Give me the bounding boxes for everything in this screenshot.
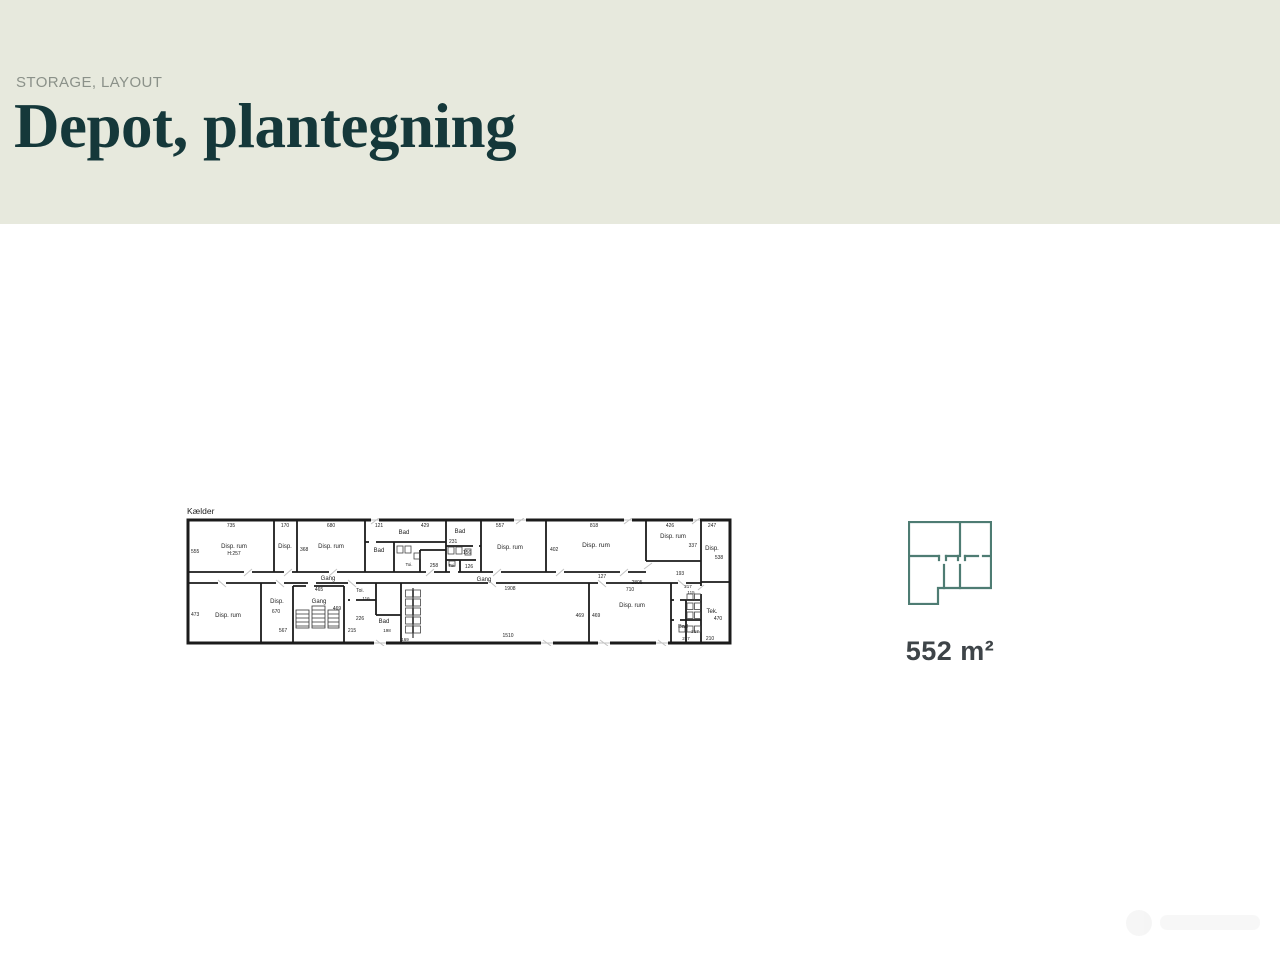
plan-label: 198: [383, 628, 391, 633]
plan-label: 426: [666, 523, 675, 529]
plan-label: Disp.: [270, 599, 284, 605]
plan-label: Toi.: [405, 562, 412, 567]
page-header: STORAGE, LAYOUT Depot, plantegning: [0, 0, 1280, 224]
plan-label: 115: [687, 590, 695, 595]
plan-label: 469: [592, 613, 601, 619]
plan-label: Bad: [374, 548, 385, 554]
plan-label: 116: [362, 596, 370, 601]
floorplan: Kælder: [186, 506, 732, 651]
plan-label: 217: [684, 584, 692, 589]
plan-label: 735: [227, 523, 236, 529]
watermark: [1126, 908, 1266, 938]
plan-label: Gang: [477, 577, 492, 583]
plan-label: Bad: [379, 619, 390, 625]
plan-label: 469: [333, 606, 342, 612]
plan-label: 473: [191, 612, 200, 618]
plan-label: 429: [421, 523, 430, 529]
plan-label: 210: [706, 636, 715, 642]
plan-label: 127: [598, 574, 607, 580]
plan-label: Disp. rum: [318, 544, 344, 550]
plan-label: 469: [576, 613, 585, 619]
plan-label: 170: [281, 523, 290, 529]
page-root: STORAGE, LAYOUT Depot, plantegning Kælde…: [0, 0, 1280, 960]
plan-label: 680: [327, 523, 336, 529]
plan-label: 818: [590, 523, 599, 529]
plan-label: 1510: [502, 633, 513, 639]
plan-label: 217: [682, 636, 690, 641]
plan-label: 2805: [631, 580, 642, 586]
plan-label: Disp.: [705, 546, 719, 552]
plan-label: Bad: [455, 529, 466, 535]
floorplan-drawing: 735555Disp. rumH:257170Disp.368680Disp. …: [186, 518, 732, 646]
plan-label: Disp. rum: [215, 613, 241, 619]
plan-label: 670: [272, 609, 281, 615]
plan-label: Toi.: [448, 563, 455, 568]
watermark-text-shape: [1160, 915, 1260, 930]
area-summary: 552 m²: [880, 521, 1020, 667]
plan-label: Toi.: [356, 588, 364, 594]
plan-label: 402: [550, 547, 559, 553]
plan-label: 217: [691, 629, 699, 634]
plan-label: 258: [430, 563, 439, 569]
plan-label: 156: [463, 550, 472, 556]
plan-label: Gang: [321, 576, 336, 582]
floorplan-name: Kælder: [187, 506, 732, 516]
plan-label: Disp. rum: [221, 544, 247, 550]
watermark-logo-icon: [1126, 910, 1152, 936]
plan-label: 368: [300, 547, 309, 553]
header-eyebrow: STORAGE, LAYOUT: [16, 74, 162, 91]
plan-label: Gang: [312, 599, 327, 605]
plan-label: 247: [708, 523, 717, 529]
plan-label: Disp. rum: [582, 542, 610, 549]
plan-label: 1908: [504, 586, 515, 592]
page-title: Depot, plantegning: [14, 92, 516, 161]
fixtures: [397, 546, 701, 633]
plan-label: 226: [356, 616, 365, 622]
plan-label: Bad: [678, 624, 688, 630]
area-label: 552 m²: [880, 636, 1020, 667]
plan-label: 126: [465, 564, 474, 570]
plan-label: Disp. rum: [660, 534, 686, 540]
plan-label: 193: [676, 571, 685, 577]
plan-label: 555: [191, 549, 200, 555]
plan-label: 567: [279, 628, 288, 634]
plan-label: Disp. rum: [497, 545, 523, 551]
plan-label: 121: [375, 523, 384, 529]
plan-label: Bad: [399, 530, 410, 536]
plan-label: 710: [626, 587, 635, 593]
plan-label: H:257: [227, 551, 241, 557]
plan-label: 337: [689, 543, 698, 549]
plan-label: 465: [315, 587, 324, 593]
plan-label: Disp. rum: [619, 603, 645, 609]
plan-label: 557: [496, 523, 505, 529]
plan-label: 169: [401, 637, 409, 642]
plan-label: 231: [449, 539, 458, 545]
floorplan-icon: [908, 521, 992, 605]
plan-label: 538: [715, 555, 724, 561]
plan-label: 470: [714, 616, 723, 622]
plan-label: 215: [348, 628, 357, 634]
plan-label: Tek.: [706, 609, 717, 615]
plan-label: Disp.: [278, 544, 292, 550]
